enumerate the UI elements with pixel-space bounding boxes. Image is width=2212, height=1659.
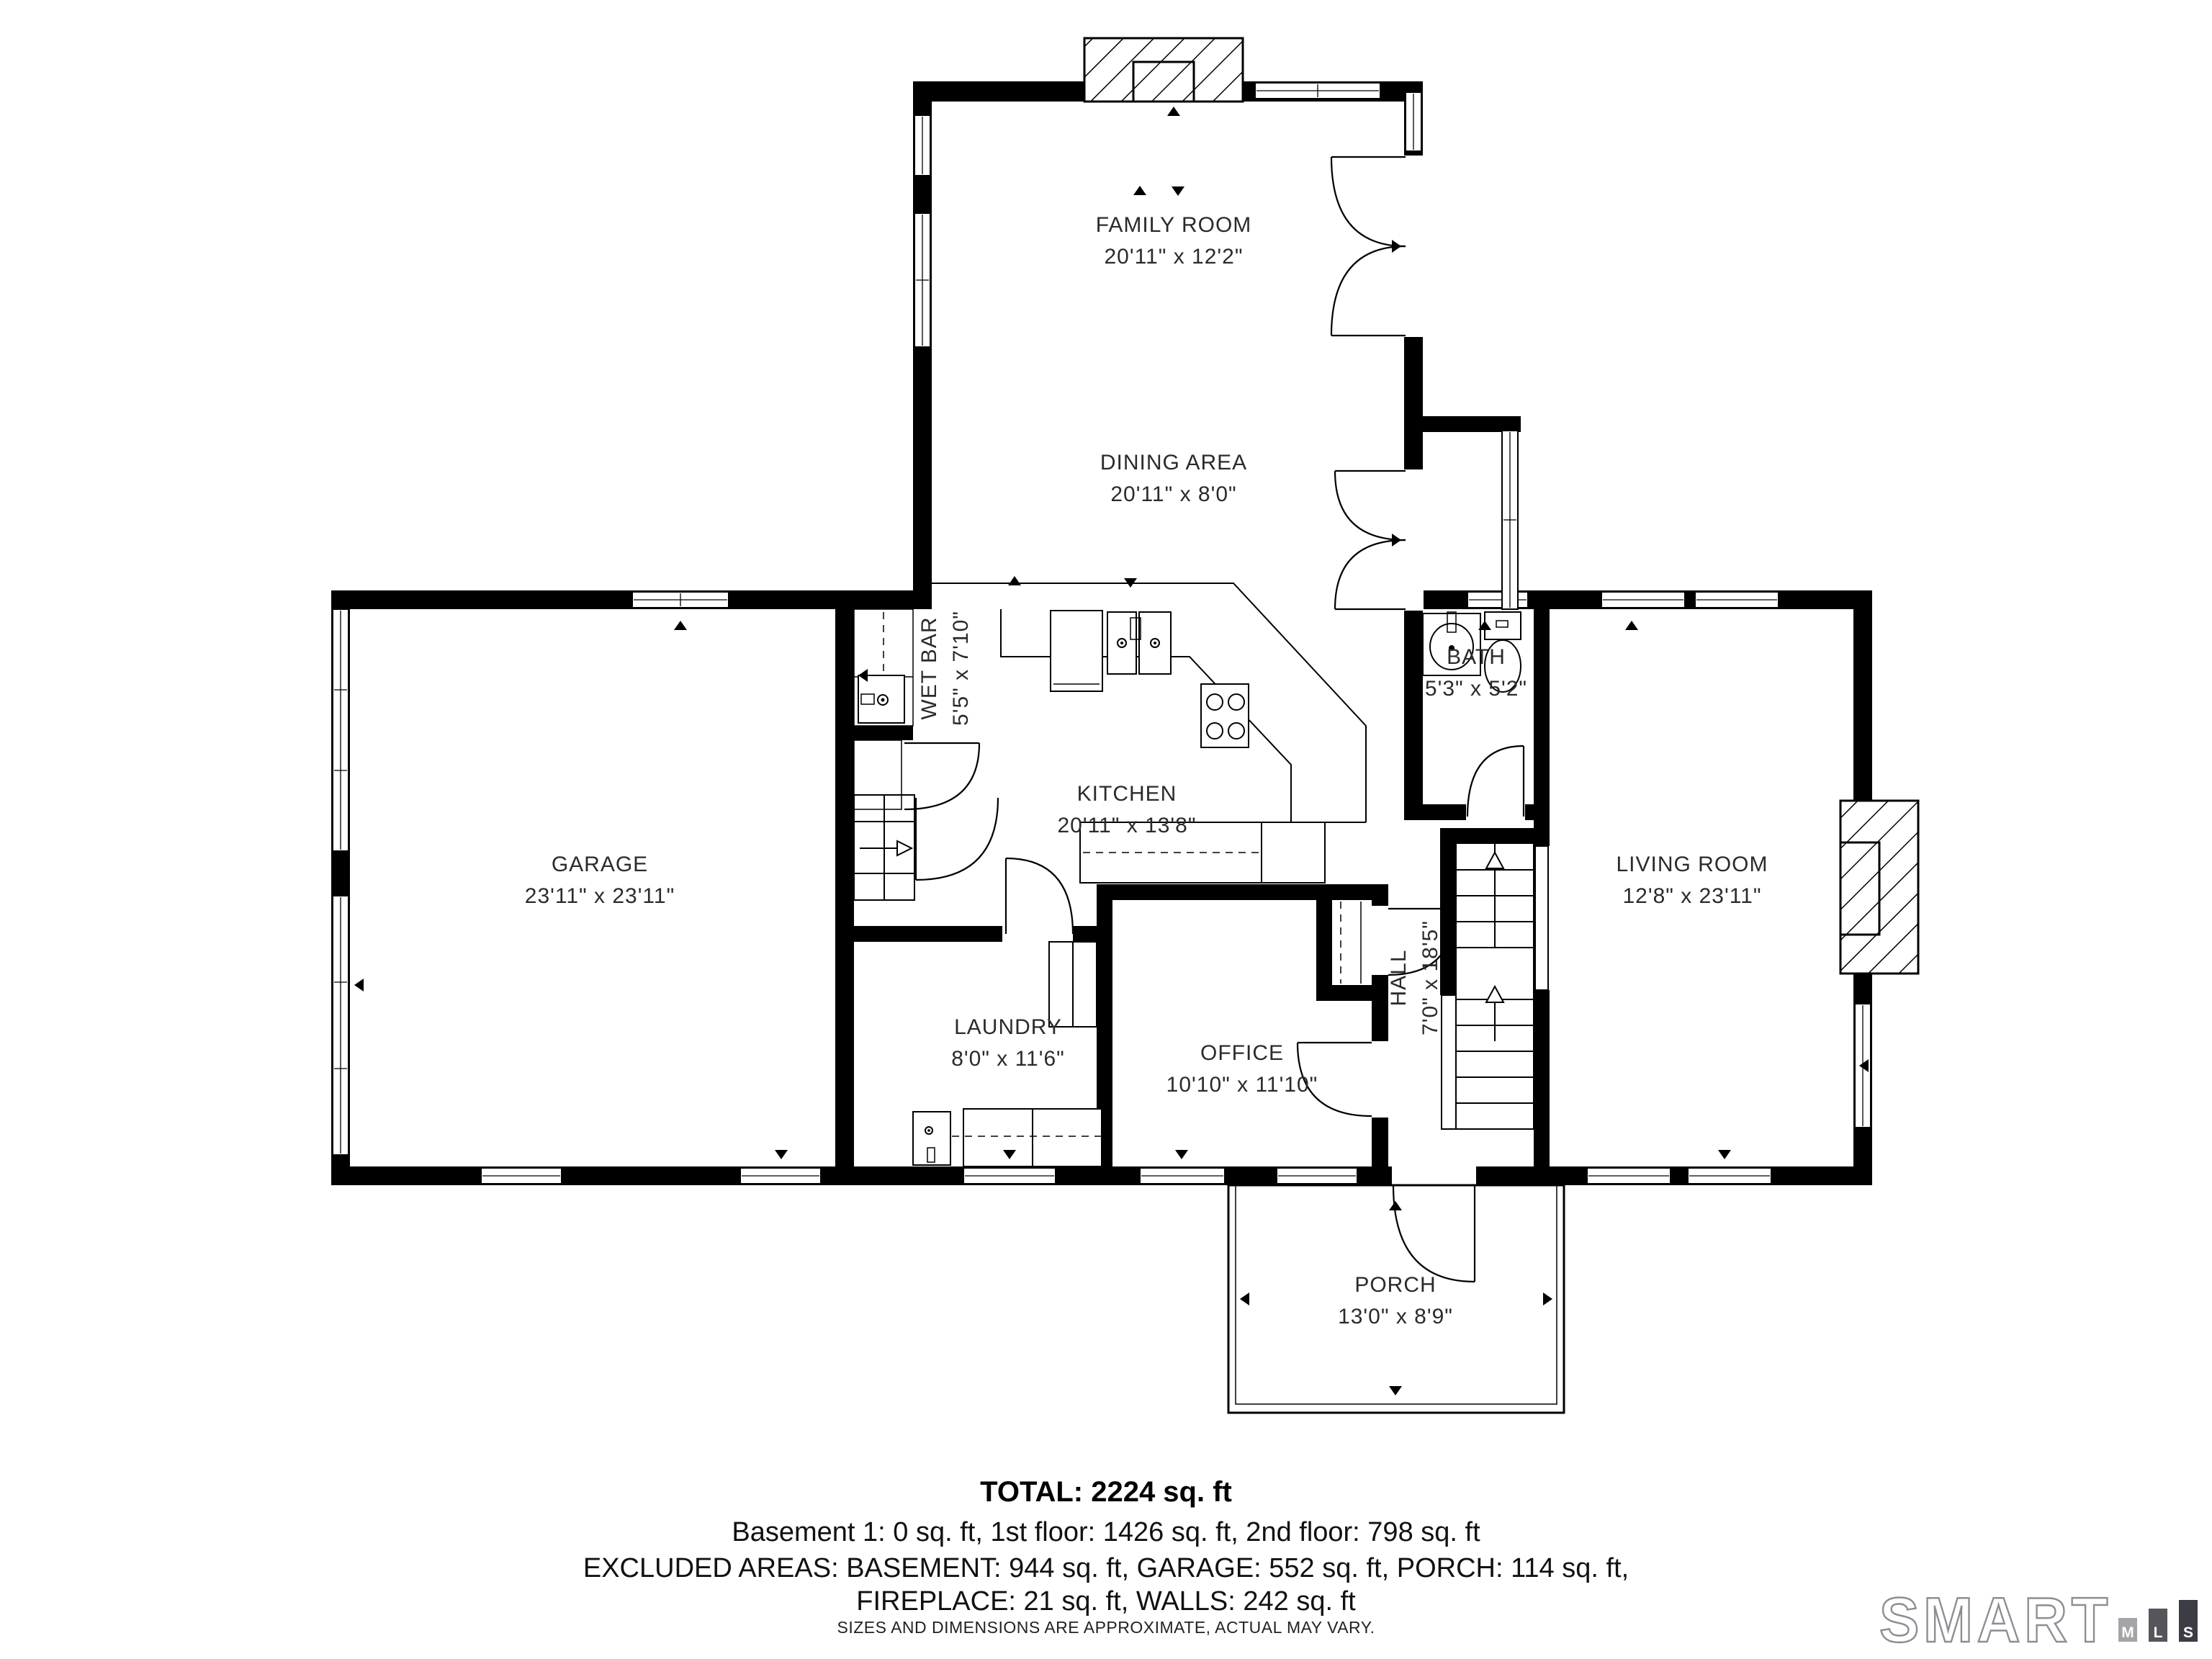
window-laundry-bottom — [963, 1168, 1056, 1184]
window-family-top — [1255, 83, 1380, 99]
office-dims: 10'10" x 11'10" — [1166, 1073, 1318, 1097]
total-area-text: TOTAL: 2224 sq. ft — [980, 1476, 1232, 1508]
summary-block: TOTAL: 2224 sq. ft Basement 1: 0 sq. ft,… — [583, 1476, 1629, 1637]
office-label: OFFICE — [1200, 1041, 1284, 1065]
excluded-areas-text-2: FIREPLACE: 21 sq. ft, WALLS: 242 sq. ft — [856, 1586, 1356, 1617]
window-dining-extension — [1502, 431, 1518, 609]
stairs-up-arrow-1 — [1486, 853, 1503, 907]
hall-label: HALL — [1387, 949, 1411, 1006]
window-office-bottom-1 — [1140, 1168, 1225, 1184]
stairs-up-arrow-2 — [1486, 986, 1503, 1041]
basement-steps — [854, 795, 914, 900]
laundry-label: LAUNDRY — [954, 1015, 1062, 1039]
wet-bar-label: WET BAR — [917, 616, 941, 719]
window-bath-top — [1467, 592, 1528, 608]
window-family-right — [1406, 92, 1421, 151]
kitchen-fixtures — [932, 583, 1366, 883]
logo-brand-text: SMART — [1879, 1584, 2112, 1655]
window-garage-top — [632, 592, 729, 608]
wet-bar-dims: 5'5" x 7'10" — [949, 611, 973, 726]
family-room-fireplace — [1084, 38, 1243, 102]
wetbar-fixtures — [854, 609, 913, 726]
window-livingroom-top-1 — [1601, 592, 1685, 608]
hall-dims: 7'0" x 18'5" — [1419, 920, 1442, 1035]
disclaimer-text: SIZES AND DIMENSIONS ARE APPROXIMATE, AC… — [837, 1618, 1375, 1637]
porch-dims: 13'0" x 8'9" — [1338, 1305, 1453, 1328]
refrigerator — [1051, 611, 1102, 691]
bath-label: BATH — [1447, 645, 1506, 669]
window-livingroom-bottom-1 — [1587, 1168, 1671, 1184]
dining-area-dims: 20'11" x 8'0" — [1110, 482, 1236, 506]
steps-arrow — [860, 841, 912, 855]
garage-entry-door — [916, 798, 998, 880]
window-garage-left-1 — [333, 609, 349, 851]
living-room-fireplace — [1840, 801, 1918, 974]
laundry-dims: 8'0" x 11'6" — [951, 1047, 1065, 1071]
front-door — [1393, 1185, 1475, 1282]
window-livingroom-bottom-2 — [1688, 1168, 1771, 1184]
window-garage-left-2 — [333, 896, 349, 1155]
window-office-bottom-2 — [1277, 1168, 1357, 1184]
smartmls-logo: SMART M L S — [1879, 1584, 2198, 1655]
logo-letter-s: S — [2183, 1624, 2193, 1641]
laundry-closet — [1049, 942, 1097, 1027]
stove — [1201, 684, 1249, 747]
logo-letter-m: M — [2121, 1624, 2134, 1641]
excluded-areas-text-1: EXCLUDED AREAS: BASEMENT: 944 sq. ft, GA… — [583, 1553, 1629, 1583]
floors-area-text: Basement 1: 0 sq. ft, 1st floor: 1426 sq… — [732, 1517, 1480, 1547]
window-livingroom-top-2 — [1695, 592, 1779, 608]
room-labels: FAMILY ROOM 20'11" x 12'2" DINING AREA 2… — [525, 213, 1768, 1328]
railing-stairs-left — [1442, 995, 1456, 1129]
hall-staircase — [1456, 844, 1534, 1129]
dimension-markers — [354, 107, 1869, 1395]
porch-label: PORCH — [1354, 1273, 1436, 1297]
window-garage-bottom-1 — [481, 1168, 562, 1184]
kitchen-label: KITCHEN — [1077, 782, 1177, 806]
kitchen-dims: 20'11" x 13'8" — [1058, 814, 1197, 837]
washer-dryer — [952, 1109, 1102, 1166]
floor-plan-page: FAMILY ROOM 20'11" x 12'2" DINING AREA 2… — [0, 0, 2212, 1659]
window-family-left-1 — [914, 115, 930, 176]
railing-hall-opening — [1535, 846, 1548, 990]
garage-label: GARAGE — [552, 853, 648, 876]
living-room-dims: 12'8" x 23'11" — [1623, 884, 1762, 908]
window-family-left-2 — [914, 213, 930, 347]
laundry-sink — [913, 1112, 950, 1165]
logo-letter-l: L — [2154, 1624, 2163, 1641]
garage-dims: 23'11" x 23'11" — [525, 884, 675, 908]
laundry-door — [1006, 858, 1073, 934]
family-room-dims: 20'11" x 12'2" — [1105, 245, 1244, 269]
hall-closet — [1341, 902, 1361, 984]
family-room-label: FAMILY ROOM — [1096, 213, 1252, 237]
floor-plan-canvas: FAMILY ROOM 20'11" x 12'2" DINING AREA 2… — [0, 0, 2212, 1659]
wetbar-closet — [854, 740, 902, 809]
bath-dims: 5'3" x 5'2" — [1425, 677, 1527, 701]
window-garage-bottom-2 — [740, 1168, 821, 1184]
dining-area-label: DINING AREA — [1100, 451, 1247, 475]
kitchen-sink — [1107, 612, 1171, 674]
living-room-label: LIVING ROOM — [1616, 853, 1768, 876]
